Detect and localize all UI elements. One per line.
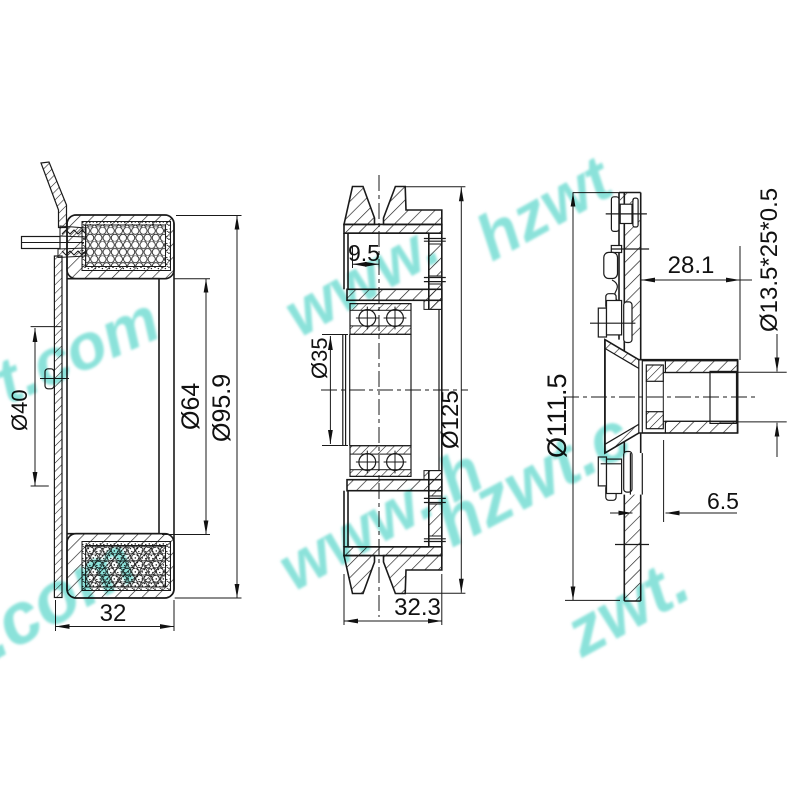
svg-text:32.3: 32.3	[394, 594, 441, 621]
svg-text:Ø64: Ø64	[177, 383, 205, 430]
svg-text:6.5: 6.5	[707, 488, 739, 514]
svg-text:Ø13.5*25*0.5: Ø13.5*25*0.5	[756, 188, 783, 332]
svg-text:Ø95.9: Ø95.9	[208, 374, 236, 442]
svg-text:28.1: 28.1	[668, 252, 715, 279]
